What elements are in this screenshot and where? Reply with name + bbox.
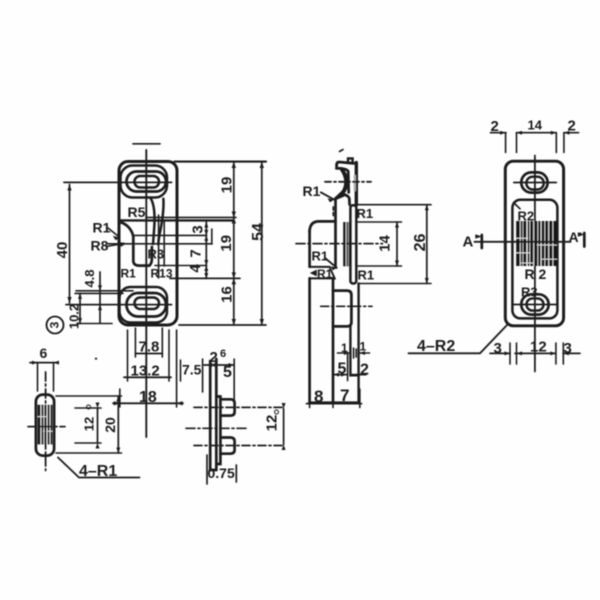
svg-text:19: 19 [219, 177, 236, 194]
svg-text:3: 3 [48, 321, 62, 328]
svg-text:6: 6 [220, 348, 226, 360]
svg-text:18: 18 [139, 389, 157, 406]
svg-text:R1: R1 [121, 267, 137, 281]
svg-text:R5: R5 [128, 204, 146, 220]
svg-text:7.8: 7.8 [139, 339, 160, 356]
svg-text:2: 2 [360, 362, 369, 379]
svg-text:20: 20 [102, 417, 118, 433]
svg-text:12: 12 [264, 415, 281, 432]
svg-text:26: 26 [412, 234, 429, 252]
svg-text:R1: R1 [317, 267, 333, 281]
svg-text:1: 1 [341, 341, 348, 355]
svg-text:2: 2 [210, 349, 218, 366]
svg-text:7.5: 7.5 [182, 362, 202, 378]
svg-text:10.2: 10.2 [67, 304, 82, 329]
svg-text:4.8: 4.8 [82, 269, 97, 287]
svg-text:R8: R8 [91, 238, 109, 254]
svg-text:4–R2: 4–R2 [417, 338, 455, 355]
svg-text:16: 16 [219, 286, 236, 303]
svg-text:3: 3 [190, 225, 207, 233]
svg-text:40: 40 [54, 242, 71, 259]
svg-text:7: 7 [340, 386, 349, 405]
svg-text:1: 1 [360, 340, 367, 354]
svg-text:54: 54 [250, 223, 267, 241]
svg-text:6: 6 [40, 345, 48, 361]
svg-text:R1: R1 [358, 267, 375, 282]
svg-text:R13: R13 [151, 267, 173, 281]
svg-text:A: A [463, 234, 474, 251]
svg-text:2: 2 [491, 118, 499, 135]
svg-text:12: 12 [82, 417, 97, 431]
svg-text:14: 14 [528, 118, 543, 133]
svg-text:12: 12 [530, 339, 547, 356]
svg-text:19: 19 [218, 235, 235, 252]
svg-text:R1: R1 [303, 183, 321, 199]
svg-text:A': A' [569, 229, 582, 245]
svg-text:R1: R1 [312, 249, 329, 264]
svg-text:4: 4 [187, 264, 204, 273]
svg-text:8: 8 [314, 387, 323, 406]
svg-text:14: 14 [377, 235, 394, 252]
svg-text:3: 3 [564, 340, 572, 357]
svg-text:R2: R2 [518, 209, 535, 224]
svg-text:R1: R1 [93, 220, 111, 236]
svg-text:R1: R1 [357, 206, 374, 221]
svg-text:R3: R3 [521, 285, 538, 300]
svg-text:7: 7 [188, 249, 205, 257]
svg-text:0.75: 0.75 [208, 465, 235, 481]
svg-text:13.2: 13.2 [131, 363, 160, 380]
svg-text:5: 5 [223, 364, 232, 381]
svg-text:5: 5 [338, 361, 347, 378]
svg-text:4–R1: 4–R1 [79, 463, 117, 480]
svg-text:R3: R3 [148, 247, 165, 262]
svg-text:3: 3 [494, 340, 502, 357]
svg-text:2: 2 [568, 118, 576, 135]
svg-text:R 2: R 2 [525, 266, 547, 282]
